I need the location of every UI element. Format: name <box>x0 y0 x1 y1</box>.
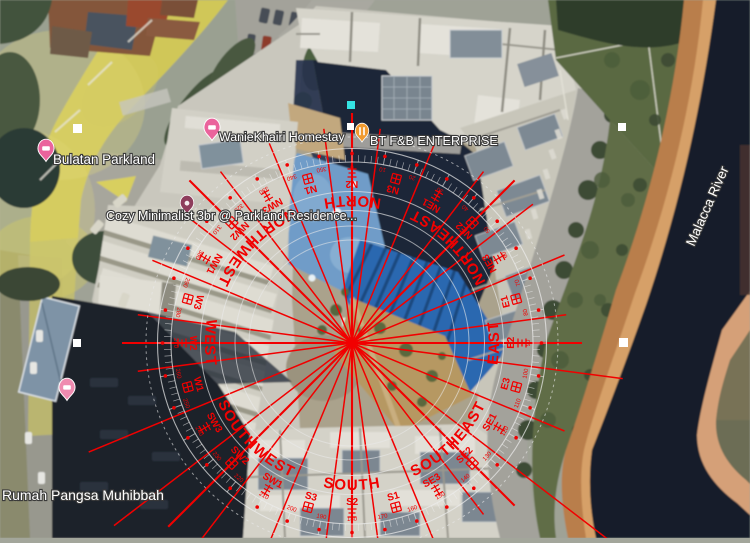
svg-text:W2: W2 <box>187 336 198 351</box>
svg-text:WEST: WEST <box>201 318 220 367</box>
svg-text:BT F&B ENTERPRISE: BT F&B ENTERPRISE <box>370 134 498 148</box>
svg-text:EAST: EAST <box>484 320 503 366</box>
svg-text:SOUTH: SOUTH <box>322 474 382 494</box>
svg-text:Bulatan Parkland: Bulatan Parkland <box>53 152 155 167</box>
svg-text:Cozy Minimalist 3br @ Parkland: Cozy Minimalist 3br @ Parkland Residence… <box>106 209 357 223</box>
svg-text:Rumah Pangsa Muhibbah: Rumah Pangsa Muhibbah <box>2 487 164 503</box>
svg-text:S2: S2 <box>346 497 359 508</box>
svg-text:N2: N2 <box>345 178 358 189</box>
svg-text:E2: E2 <box>506 336 517 349</box>
svg-text:WanieKhairi Homestay: WanieKhairi Homestay <box>219 130 345 144</box>
